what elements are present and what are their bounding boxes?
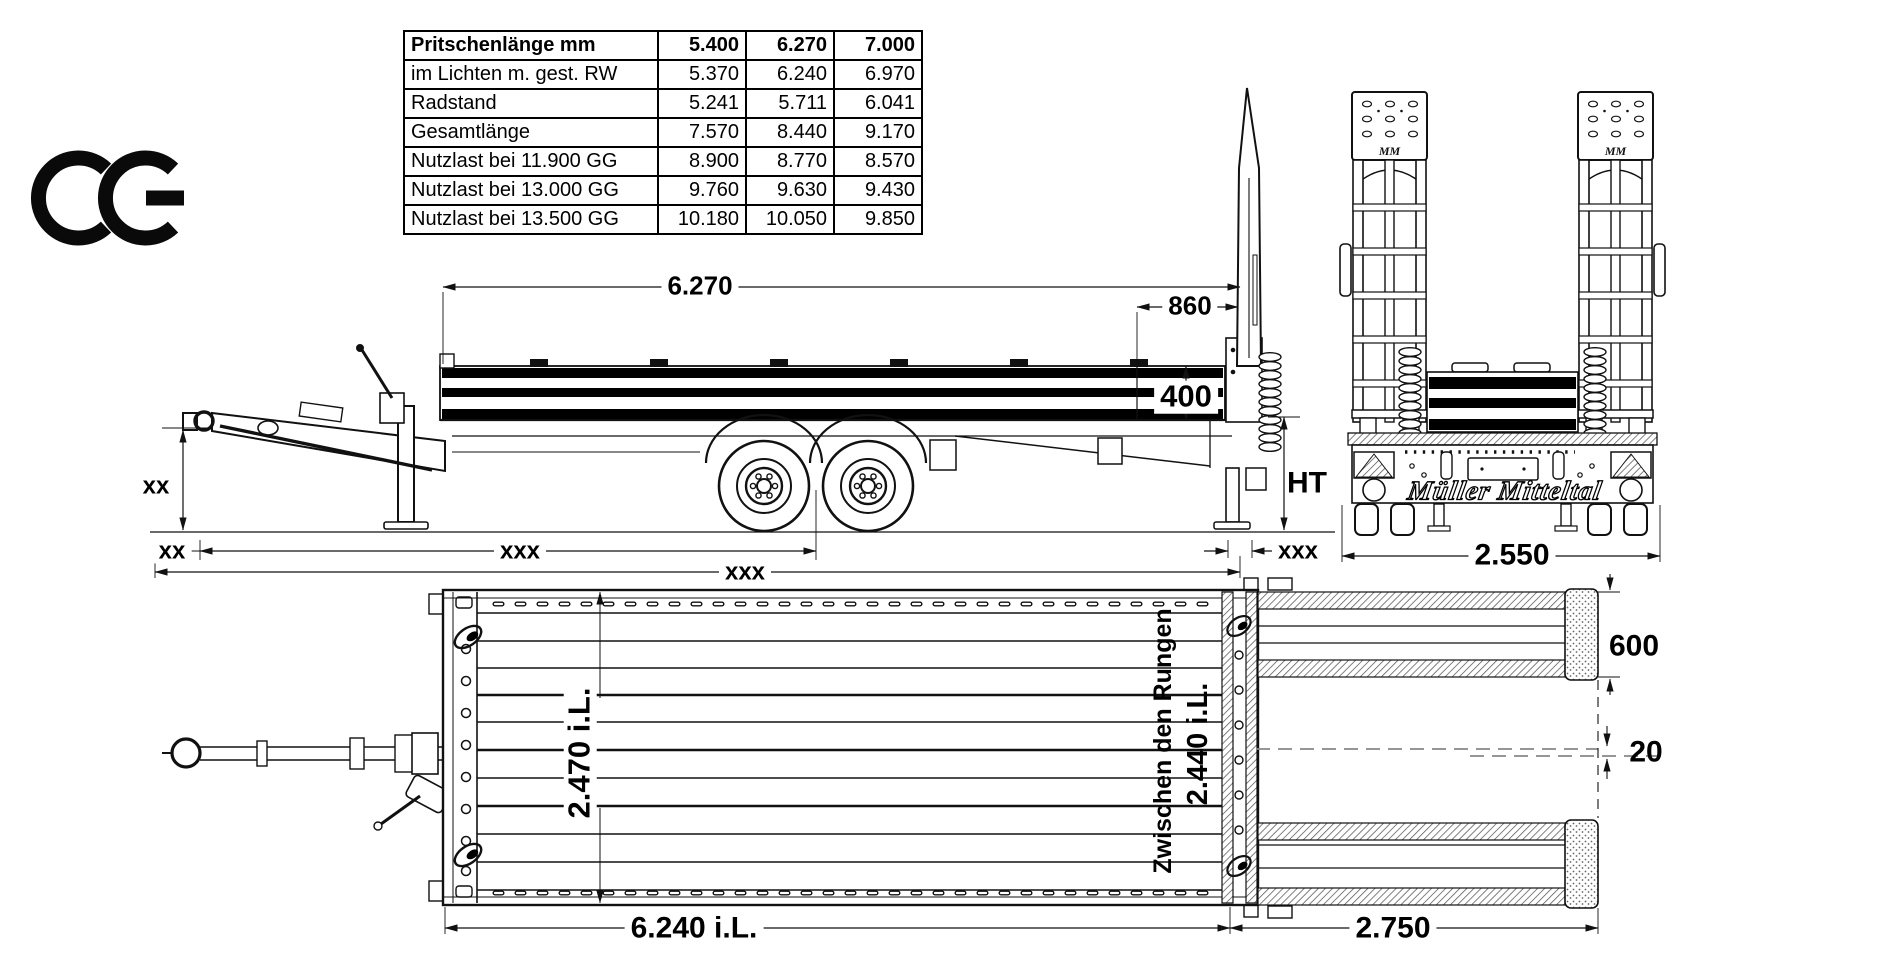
spec-row-label: Radstand (404, 89, 658, 118)
spec-cell: 9.630 (746, 176, 834, 205)
spec-row-label: Nutzlast bei 13.500 GG (404, 205, 658, 234)
spec-header-value: 5.400 (658, 31, 746, 60)
spec-cell: 6.240 (746, 60, 834, 89)
spec-row: Nutzlast bei 13.500 GG 10.180 10.050 9.8… (404, 205, 922, 234)
technical-drawing-canvas: MM (0, 0, 1877, 960)
spec-cell: 9.760 (658, 176, 746, 205)
ramp-spring-left (1399, 348, 1421, 447)
spec-cell: 8.900 (658, 147, 746, 176)
dim-label-ramp-offset: 860 (1162, 292, 1217, 319)
dim-label-platform-length: 6.270 (661, 272, 738, 299)
dim-label-inner-length: 6.240 i.L. (625, 912, 764, 944)
dim-label-axle-distance: xxx (494, 538, 546, 563)
drawbar-top-view (162, 733, 451, 830)
rear-boards (1427, 363, 1578, 432)
spec-cell: 6.970 (834, 60, 922, 89)
spec-cell: 10.050 (746, 205, 834, 234)
spec-row-label: Gesamtlänge (404, 118, 658, 147)
raised-ramp-side-view (1214, 88, 1281, 529)
spec-cell: 8.440 (746, 118, 834, 147)
rear-wheels (1355, 504, 1647, 535)
dim-platform-length (443, 287, 1240, 364)
spec-header-value: 7.000 (834, 31, 922, 60)
spec-row: Gesamtlänge 7.570 8.440 9.170 (404, 118, 922, 147)
dim-label-board-height: 400 (1154, 381, 1218, 414)
tail-light-right (1620, 479, 1642, 501)
ce-mark-icon (38, 158, 184, 238)
platform-top-view (429, 578, 1258, 917)
towing-eye-top (172, 739, 200, 767)
ramp-handle-right (1654, 244, 1665, 296)
ramp-handle-left (1340, 244, 1351, 296)
spec-cell: 8.770 (746, 147, 834, 176)
side-boards (440, 354, 1225, 420)
spec-row-label: im Lichten m. gest. RW (404, 60, 658, 89)
spec-cell: 8.570 (834, 147, 922, 176)
ramps-top-view (1258, 578, 1598, 918)
top-view (162, 574, 1668, 934)
dim-label-between-stakes-width: 2.440 i.L. (1183, 677, 1213, 812)
dim-label-total-length: xxx (719, 559, 771, 584)
label-between-stakes: Zwischen den Rungen (1150, 602, 1176, 879)
dim-label-ramp-gap: 20 (1623, 736, 1668, 768)
dim-label-drawbar-height: xx (137, 473, 176, 498)
spec-cell: 7.570 (658, 118, 746, 147)
spec-cell: 5.711 (746, 89, 834, 118)
spec-row-label: Nutzlast bei 13.000 GG (404, 176, 658, 205)
dim-label-rear-overhang: xxx (1272, 538, 1324, 563)
tail-light-left (1363, 479, 1385, 501)
ramp-spring-right (1584, 348, 1606, 447)
dim-label-inner-width: 2.470 i.L. (564, 682, 597, 825)
spec-cell: 9.170 (834, 118, 922, 147)
spec-cell: 5.370 (658, 60, 746, 89)
spec-table: Pritschenlänge mm 5.400 6.270 7.000 im L… (403, 30, 923, 235)
brand-logo: Müller Mitteltal (1405, 476, 1604, 507)
dim-label-loading-height: HT (1281, 467, 1333, 499)
spec-cell: 6.041 (834, 89, 922, 118)
dim-bottom-chain (155, 490, 1276, 578)
spec-header-label: Pritschenlänge mm (404, 31, 658, 60)
spec-row: Radstand 5.241 5.711 6.041 (404, 89, 922, 118)
spec-row: Nutzlast bei 11.900 GG 8.900 8.770 8.570 (404, 147, 922, 176)
spec-cell: 9.430 (834, 176, 922, 205)
spec-row: im Lichten m. gest. RW 5.370 6.240 6.970 (404, 60, 922, 89)
ramp-spring-side (1259, 353, 1281, 452)
spec-cell: 9.850 (834, 205, 922, 234)
dim-label-ramp-width: 600 (1603, 630, 1665, 662)
dim-label-front-overhang: xx (153, 538, 192, 563)
spec-cell: 10.180 (658, 205, 746, 234)
dim-label-ramp-length: 2.750 (1349, 912, 1436, 944)
spec-header-row: Pritschenlänge mm 5.400 6.270 7.000 (404, 31, 922, 60)
spec-row: Nutzlast bei 13.000 GG 9.760 9.630 9.430 (404, 176, 922, 205)
spec-row-label: Nutzlast bei 11.900 GG (404, 147, 658, 176)
spec-cell: 5.241 (658, 89, 746, 118)
dim-label-rear-width: 2.550 (1468, 539, 1555, 571)
spec-header-value: 6.270 (746, 31, 834, 60)
